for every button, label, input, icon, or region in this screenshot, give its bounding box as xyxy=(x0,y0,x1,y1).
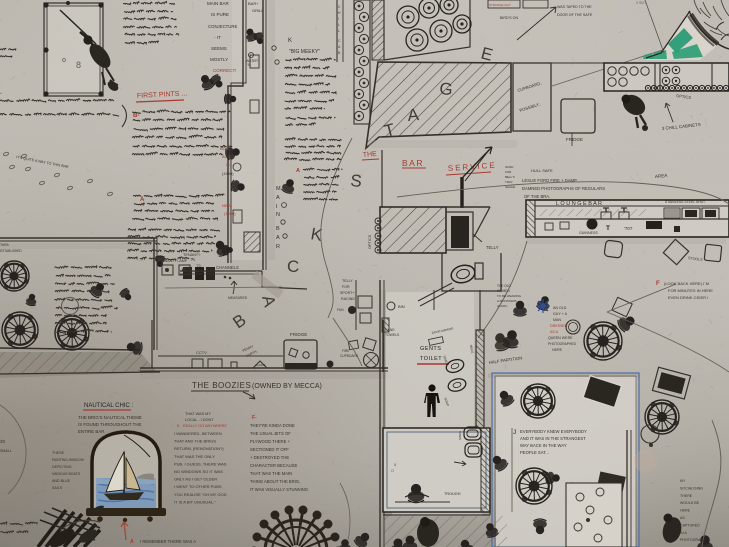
svg-text:SAND: SAND xyxy=(505,165,514,169)
svg-text:MOSTLY: MOSTLY xyxy=(210,57,228,62)
svg-text:ALARM: ALARM xyxy=(255,363,266,367)
svg-text:F-: F- xyxy=(252,415,257,421)
svg-text:YOU REALISE "OH MY GOD: YOU REALISE "OH MY GOD xyxy=(174,492,227,497)
svg-text:RETURN, (RENOVATION?): RETURN, (RENOVATION?) xyxy=(174,446,224,451)
svg-text:(1990): (1990) xyxy=(224,211,236,216)
svg-text:THAT WAS THE MAIN: THAT WAS THE MAIN xyxy=(250,471,292,476)
svg-text:DRESSED: DRESSED xyxy=(550,324,568,328)
svg-text:HERE: HERE xyxy=(680,509,691,513)
svg-text:SAILS: SAILS xyxy=(52,486,63,490)
svg-text:B: B xyxy=(276,226,280,232)
svg-text:SEEMS: SEEMS xyxy=(211,46,227,51)
svg-text:BAR: BAR xyxy=(402,158,424,168)
svg-text:A MONSTERS: A MONSTERS xyxy=(497,299,517,303)
svg-text:AND BLUE: AND BLUE xyxy=(52,479,71,483)
svg-text:PLYWOOD THERE +: PLYWOOD THERE + xyxy=(250,439,291,444)
svg-text:'70?: '70? xyxy=(624,226,633,231)
svg-text:(LOOK): (LOOK) xyxy=(497,304,507,308)
svg-text:MAN: MAN xyxy=(553,318,561,322)
svg-text:I: I xyxy=(338,17,339,21)
svg-text:PHOTOGRAPHED: PHOTOGRAPHED xyxy=(548,342,577,346)
svg-text:WOULD BE: WOULD BE xyxy=(680,501,700,505)
svg-text:TELLY: TELLY xyxy=(486,245,499,250)
svg-text:SMALL: SMALL xyxy=(0,449,12,453)
svg-text:WOMEN: WOMEN xyxy=(497,289,510,293)
svg-text:AN OLD: AN OLD xyxy=(553,306,567,310)
svg-text:IS PURE: IS PURE xyxy=(211,12,229,17)
svg-text:IS: IS xyxy=(226,162,230,167)
svg-text:FRIDGE: FRIDGE xyxy=(290,332,307,337)
svg-text:LESLIE FORD FIRE + DAMP: LESLIE FORD FIRE + DAMP xyxy=(522,178,577,183)
svg-text:N: N xyxy=(276,212,280,218)
svg-text:8: 8 xyxy=(76,60,81,70)
svg-text:QUEEN WERE: QUEEN WERE xyxy=(548,336,573,340)
svg-text:WAS TAPED TO THE: WAS TAPED TO THE xyxy=(557,5,592,9)
svg-text:THERE: THERE xyxy=(680,494,693,498)
svg-text:EVERYBODY KNEW EVERYBODY: EVERYBODY KNEW EVERYBODY xyxy=(520,429,587,434)
svg-text:O: O xyxy=(391,468,394,473)
svg-text:THE OLD: THE OLD xyxy=(497,284,512,288)
svg-text:BIRD'S ON: BIRD'S ON xyxy=(500,16,518,20)
svg-text:TROUGH: TROUGH xyxy=(444,492,461,496)
svg-text:"BIG MEEKY": "BIG MEEKY" xyxy=(289,49,320,55)
svg-text:AS: AS xyxy=(680,516,685,520)
svg-text:OPTICS: OPTICS xyxy=(368,234,372,249)
svg-text:MY: MY xyxy=(680,479,686,483)
svg-text:ESTABLISHED: ESTABLISHED xyxy=(0,249,22,253)
svg-text:- IT: - IT xyxy=(214,35,221,40)
svg-text:THAT WAS MY: THAT WAS MY xyxy=(185,412,211,416)
svg-text:NO WINDOWS SO IT WAS: NO WINDOWS SO IT WAS xyxy=(174,469,223,474)
svg-text:A: A xyxy=(130,539,134,545)
svg-text:SOCIALISING: SOCIALISING xyxy=(680,486,703,490)
svg-text:LOCAL - I DONT: LOCAL - I DONT xyxy=(185,418,214,422)
svg-text:NAUTICAL CHIC :: NAUTICAL CHIC : xyxy=(84,403,133,409)
svg-text:AS A: AS A xyxy=(550,330,559,334)
svg-text:GUY + A: GUY + A xyxy=(553,312,568,316)
svg-text:BIN: BIN xyxy=(398,304,405,309)
svg-text:'70: '70 xyxy=(190,257,196,262)
svg-text:THAT AND THE BRIGS: THAT AND THE BRIGS xyxy=(174,439,216,444)
svg-text:TOWELS: TOWELS xyxy=(385,333,400,337)
svg-text:M: M xyxy=(276,186,281,192)
svg-text:L: L xyxy=(338,29,340,33)
svg-text:THE BRIG'S NAUTICAL THEME: THE BRIG'S NAUTICAL THEME xyxy=(78,415,142,420)
svg-text:THING ABOUT THE BRIG,: THING ABOUT THE BRIG, xyxy=(250,479,300,484)
svg-text:GUINNESS: GUINNESS xyxy=(579,231,598,235)
svg-text:ACID: ACID xyxy=(222,154,232,159)
svg-text:IT WAS VISUALLY STUNNING: IT WAS VISUALLY STUNNING xyxy=(250,487,308,492)
svg-text:SPORT+: SPORT+ xyxy=(340,291,354,295)
svg-text:THE USUAL BITS OF: THE USUAL BITS OF xyxy=(250,431,291,436)
svg-text:30: 30 xyxy=(0,439,6,444)
svg-text:L O U N G E B A R: L O U N G E B A R xyxy=(556,201,602,207)
svg-text:L: L xyxy=(338,23,340,27)
svg-text:AND IT WAS IN THE STRANGEST: AND IT WAS IN THE STRANGEST xyxy=(520,436,586,441)
svg-text:+ DESTROYED THE: + DESTROYED THE xyxy=(250,455,289,460)
svg-text:STRANGE GUY: STRANGE GUY xyxy=(489,3,511,7)
svg-text:FOR: FOR xyxy=(342,285,350,289)
svg-text:PUB. I GUESS, THERE WAS: PUB. I GUESS, THERE WAS xyxy=(174,461,227,466)
svg-text:IN A: IN A xyxy=(680,531,687,535)
svg-text:TOILET: TOILET xyxy=(420,356,442,362)
svg-text:MEASURED: MEASURED xyxy=(228,296,248,300)
svg-text:ENTIRE BAR.: ENTIRE BAR. xyxy=(78,429,106,434)
svg-text:R: R xyxy=(276,244,280,250)
svg-text:TARA: TARA xyxy=(0,243,10,247)
svg-text:THAT WAS THE ONLY: THAT WAS THE ONLY xyxy=(174,454,215,459)
svg-text:TO BE WEARING: TO BE WEARING xyxy=(497,294,522,298)
svg-text:ONLY AS I GET OLDER: ONLY AS I GET OLDER xyxy=(174,477,217,482)
svg-text:CORRECT!: CORRECT! xyxy=(213,68,237,73)
svg-text:A: A xyxy=(276,195,280,201)
svg-text:C: C xyxy=(287,257,299,276)
svg-text:DOOR OF THE SAFE: DOOR OF THE SAFE xyxy=(557,13,593,17)
svg-text:TENANT?: TENANT? xyxy=(183,253,200,257)
svg-text:IS FOUND THROUGHOUT THE: IS FOUND THROUGHOUT THE xyxy=(78,422,141,427)
svg-text:FOR MINUTES IN HERE: FOR MINUTES IN HERE xyxy=(668,288,713,293)
svg-text:G: G xyxy=(439,79,454,99)
svg-text:FRIDGE: FRIDGE xyxy=(566,137,583,142)
svg-text:EVEN DRINK CIDER I: EVEN DRINK CIDER I xyxy=(668,295,708,300)
svg-text:NEW: NEW xyxy=(222,203,232,208)
svg-text:PEOPLE SAT...: PEOPLE SAT... xyxy=(520,450,549,455)
svg-text:'91: '91 xyxy=(247,63,251,67)
svg-text:OF THE BRA.: OF THE BRA. xyxy=(524,194,550,199)
svg-text:K: K xyxy=(288,38,292,44)
svg-text:A: A xyxy=(296,168,300,174)
svg-text:2 SO?: 2 SO? xyxy=(636,1,646,5)
svg-text:REALLY GO ANYWHERE: REALLY GO ANYWHERE xyxy=(183,424,227,428)
svg-text:PHOTOGRAPH: PHOTOGRAPH xyxy=(680,538,706,542)
svg-text:THE BOOZIES: THE BOOZIES xyxy=(192,381,251,390)
svg-text:I REMEMBER THERE WAS A: I REMEMBER THERE WAS A xyxy=(140,539,196,544)
svg-text:A: A xyxy=(276,235,280,241)
svg-text:I WENT TO OTHER PUBS: I WENT TO OTHER PUBS xyxy=(174,484,222,489)
svg-text:STAINLESS STEEL SHUT.: STAINLESS STEEL SHUT. xyxy=(665,200,706,204)
svg-text:SINKS: SINKS xyxy=(458,431,462,440)
svg-text:CCTV: CCTV xyxy=(196,350,207,355)
svg-text:CAPTURED: CAPTURED xyxy=(680,523,700,527)
svg-text:DAMNED PHOTOGRAPHS OF REGUL: DAMNED PHOTOGRAPHS OF REGULARS xyxy=(522,186,605,191)
svg-text:SHAKE: SHAKE xyxy=(505,185,515,189)
svg-text:WAY BACK IN THE WAY: WAY BACK IN THE WAY xyxy=(520,443,567,448)
svg-text:^: ^ xyxy=(0,91,2,96)
svg-text:S: S xyxy=(350,171,363,191)
svg-text:BELL'S: BELL'S xyxy=(505,175,515,179)
svg-text:GRILL: GRILL xyxy=(252,8,264,13)
svg-text:'70: '70 xyxy=(196,264,201,268)
svg-text:BAR+: BAR+ xyxy=(248,1,259,6)
svg-text:GENTS: GENTS xyxy=(420,346,441,352)
svg-text:DEPICTING: DEPICTING xyxy=(52,465,72,469)
svg-text:FUN: FUN xyxy=(337,308,344,312)
svg-text:(OWNED BY MECCA): (OWNED BY MECCA) xyxy=(252,383,322,390)
svg-text:F: F xyxy=(656,281,660,287)
svg-text:BOB,: BOB, xyxy=(220,146,230,151)
svg-text:J: J xyxy=(513,430,516,436)
svg-text:SECTIONED IT OFF: SECTIONED IT OFF xyxy=(250,447,289,452)
svg-text:(1990): (1990) xyxy=(222,171,234,176)
svg-text:TRAY: TRAY xyxy=(505,180,513,184)
svg-text:T: T xyxy=(606,225,610,232)
svg-text:IT IS A BIT UNUSUAL.": IT IS A BIT UNUSUAL." xyxy=(174,499,216,504)
svg-text:THE: THE xyxy=(363,151,378,159)
svg-text:CHANNELS: CHANNELS xyxy=(216,265,239,270)
svg-text:FOR: FOR xyxy=(505,170,512,174)
svg-text:PAINTING-WINDOW: PAINTING-WINDOW xyxy=(52,458,85,462)
svg-text:RACING: RACING xyxy=(341,297,355,301)
svg-text:THESE: THESE xyxy=(52,451,65,455)
svg-text:HULL SAFE: HULL SAFE xyxy=(531,168,553,173)
svg-text:FIRE: FIRE xyxy=(342,349,349,353)
svg-text:VARIOUS BOATS: VARIOUS BOATS xyxy=(52,472,81,476)
svg-text:HERE: HERE xyxy=(552,348,563,352)
svg-text:CHARACTER BECAUSE: CHARACTER BECAUSE xyxy=(250,463,297,468)
svg-text:A: A xyxy=(140,197,145,203)
svg-text:E: E xyxy=(177,423,180,428)
svg-text:I WANDERED- BETWEEN: I WANDERED- BETWEEN xyxy=(174,431,222,436)
svg-text:(LOOK BACK HERE) I´M: (LOOK BACK HERE) I´M xyxy=(664,281,709,286)
svg-text:THEY'RE KINDA DONE: THEY'RE KINDA DONE xyxy=(250,423,295,428)
svg-text:HAND: HAND xyxy=(385,328,395,332)
svg-text:CONJECTURE: CONJECTURE xyxy=(208,24,237,29)
svg-text:B-: B- xyxy=(133,113,139,119)
svg-text:MAIN BAR: MAIN BAR xyxy=(207,1,230,6)
svg-text:TELLY: TELLY xyxy=(342,279,353,283)
